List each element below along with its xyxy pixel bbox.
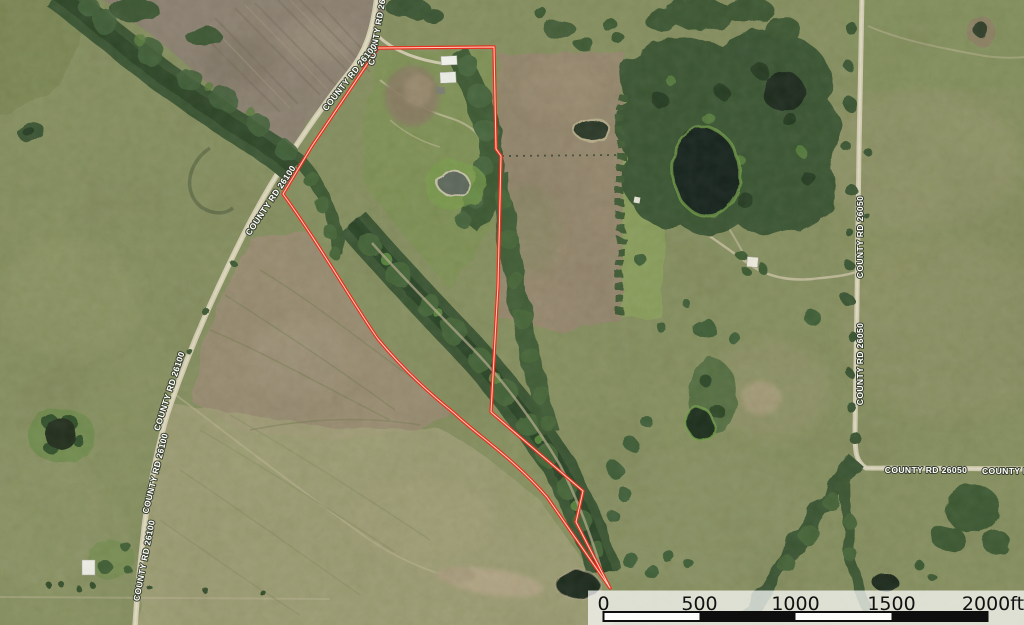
scale-bar-segments [604,612,988,621]
satellite-map-canvas[interactable]: > [0,0,1024,625]
road-label-county-rd-26050: COUNTY RD 26050 [855,323,865,405]
scale-bar: 0 500 1000 1500 2000ft [588,591,1024,625]
road-label-county-rd-26050-clipped: COUNTY RD 26050 [982,466,1024,476]
road-label-county-rd-26050: COUNTY RD 26050 [855,196,865,278]
map-viewport[interactable]: > [0,0,1024,625]
road-label-county-rd-26050: COUNTY RD 26050 [885,465,967,475]
